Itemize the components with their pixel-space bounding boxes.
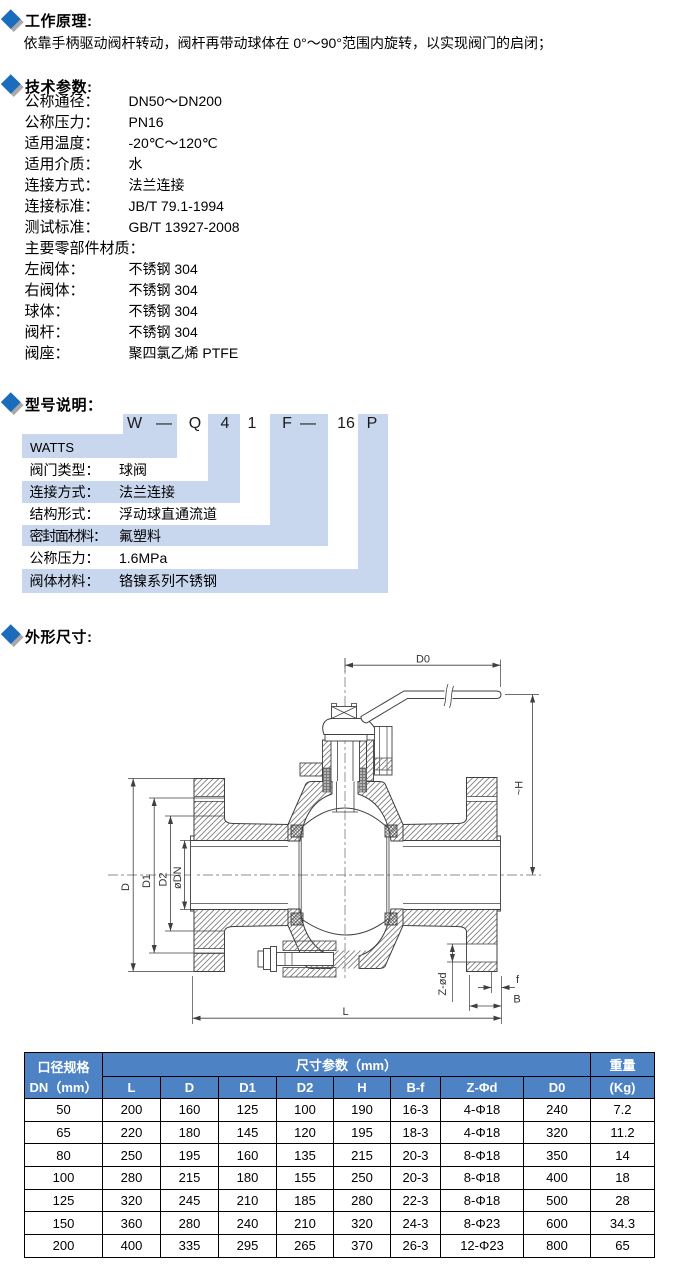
svg-text:D0: D0: [416, 654, 430, 666]
svg-text:D2: D2: [158, 872, 170, 886]
svg-text:Z-ød: Z-ød: [437, 972, 449, 995]
svg-text:L: L: [342, 1006, 348, 1018]
svg-text:~H: ~H: [514, 781, 526, 795]
svg-text:D1: D1: [141, 874, 153, 888]
svg-text:øDN: øDN: [172, 866, 184, 889]
svg-text:D: D: [120, 883, 132, 891]
svg-text:B: B: [513, 994, 520, 1006]
svg-text:f: f: [516, 974, 520, 986]
